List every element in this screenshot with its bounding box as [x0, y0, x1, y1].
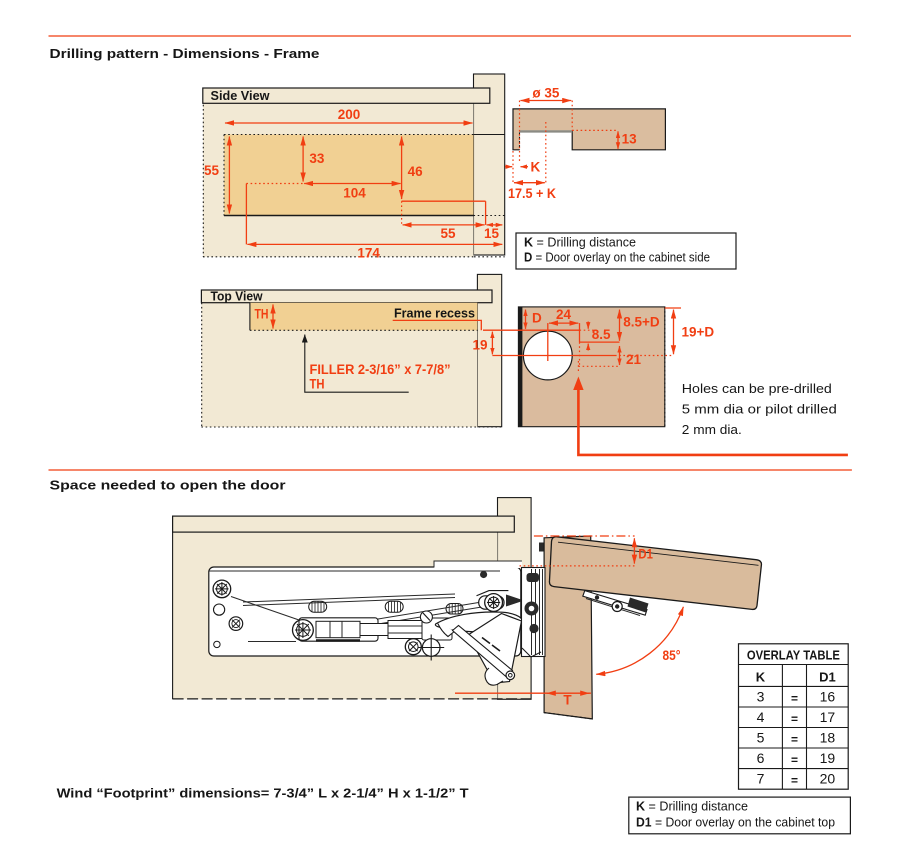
- svg-text:55: 55: [440, 226, 456, 241]
- svg-text:D = Door overlay on the cabine: D = Door overlay on the cabinet side: [524, 250, 710, 265]
- svg-text:K: K: [756, 670, 766, 685]
- svg-text:Holes can be pre-drilled: Holes can be pre-drilled: [682, 381, 832, 396]
- svg-text:15: 15: [484, 226, 500, 241]
- svg-text:85°: 85°: [663, 648, 681, 663]
- svg-text:D1: D1: [638, 547, 653, 562]
- svg-text:104: 104: [343, 186, 366, 201]
- svg-text:2 mm dia.: 2 mm dia.: [682, 422, 742, 437]
- svg-text:Drilling pattern - Dimensions: Drilling pattern - Dimensions - Frame: [50, 46, 320, 61]
- svg-text:=: =: [791, 712, 798, 726]
- svg-text:8.5: 8.5: [592, 327, 611, 342]
- svg-text:21: 21: [626, 352, 642, 367]
- svg-text:=: =: [791, 774, 798, 788]
- svg-text:K = Drilling distance: K = Drilling distance: [524, 235, 636, 250]
- svg-text:T: T: [563, 693, 572, 708]
- svg-text:5: 5: [757, 730, 765, 746]
- svg-text:K: K: [531, 160, 541, 175]
- svg-text:24: 24: [556, 307, 572, 322]
- svg-text:19+D: 19+D: [682, 325, 715, 340]
- svg-text:33: 33: [309, 151, 325, 166]
- svg-text:TH: TH: [310, 377, 325, 392]
- svg-text:16: 16: [820, 689, 836, 705]
- svg-text:55: 55: [204, 163, 220, 178]
- svg-text:OVERLAY TABLE: OVERLAY TABLE: [747, 648, 840, 663]
- svg-text:19: 19: [820, 750, 836, 766]
- svg-text:20: 20: [820, 771, 836, 787]
- svg-text:19: 19: [472, 338, 487, 353]
- svg-text:17.5 + K: 17.5 + K: [508, 186, 556, 201]
- svg-text:174: 174: [357, 246, 380, 261]
- svg-text:6: 6: [757, 750, 765, 766]
- svg-text:TH: TH: [255, 307, 269, 322]
- svg-text:Top View: Top View: [211, 288, 264, 303]
- svg-text:5 mm dia or pilot drilled: 5 mm dia or pilot drilled: [682, 402, 837, 417]
- svg-text:ø 35: ø 35: [532, 86, 560, 101]
- svg-text:8.5+D: 8.5+D: [623, 315, 660, 330]
- svg-text:=: =: [791, 692, 798, 706]
- svg-text:17: 17: [820, 709, 836, 725]
- svg-text:Frame recess: Frame recess: [394, 306, 475, 321]
- svg-text:18: 18: [820, 730, 836, 746]
- svg-text:K = Drilling distance: K = Drilling distance: [636, 799, 748, 814]
- svg-text:13: 13: [622, 132, 638, 147]
- svg-text:FILLER 2-3/16” x 7-7/8”: FILLER 2-3/16” x 7-7/8”: [310, 362, 451, 377]
- svg-text:=: =: [791, 733, 798, 747]
- svg-text:4: 4: [757, 709, 765, 725]
- svg-text:=: =: [791, 753, 798, 767]
- svg-text:Space needed to open the door: Space needed to open the door: [50, 478, 286, 493]
- svg-text:200: 200: [338, 107, 361, 122]
- svg-text:7: 7: [757, 771, 765, 787]
- svg-text:D1 = Door overlay on the cabin: D1 = Door overlay on the cabinet top: [636, 815, 835, 830]
- svg-text:46: 46: [408, 164, 424, 179]
- svg-text:D: D: [532, 311, 542, 326]
- svg-text:3: 3: [757, 689, 765, 705]
- svg-text:D1: D1: [819, 670, 836, 685]
- svg-text:Wind “Footprint” dimensions=: Wind “Footprint” dimensions= 7-3/4” L x …: [57, 786, 469, 801]
- svg-text:Side View: Side View: [211, 88, 271, 103]
